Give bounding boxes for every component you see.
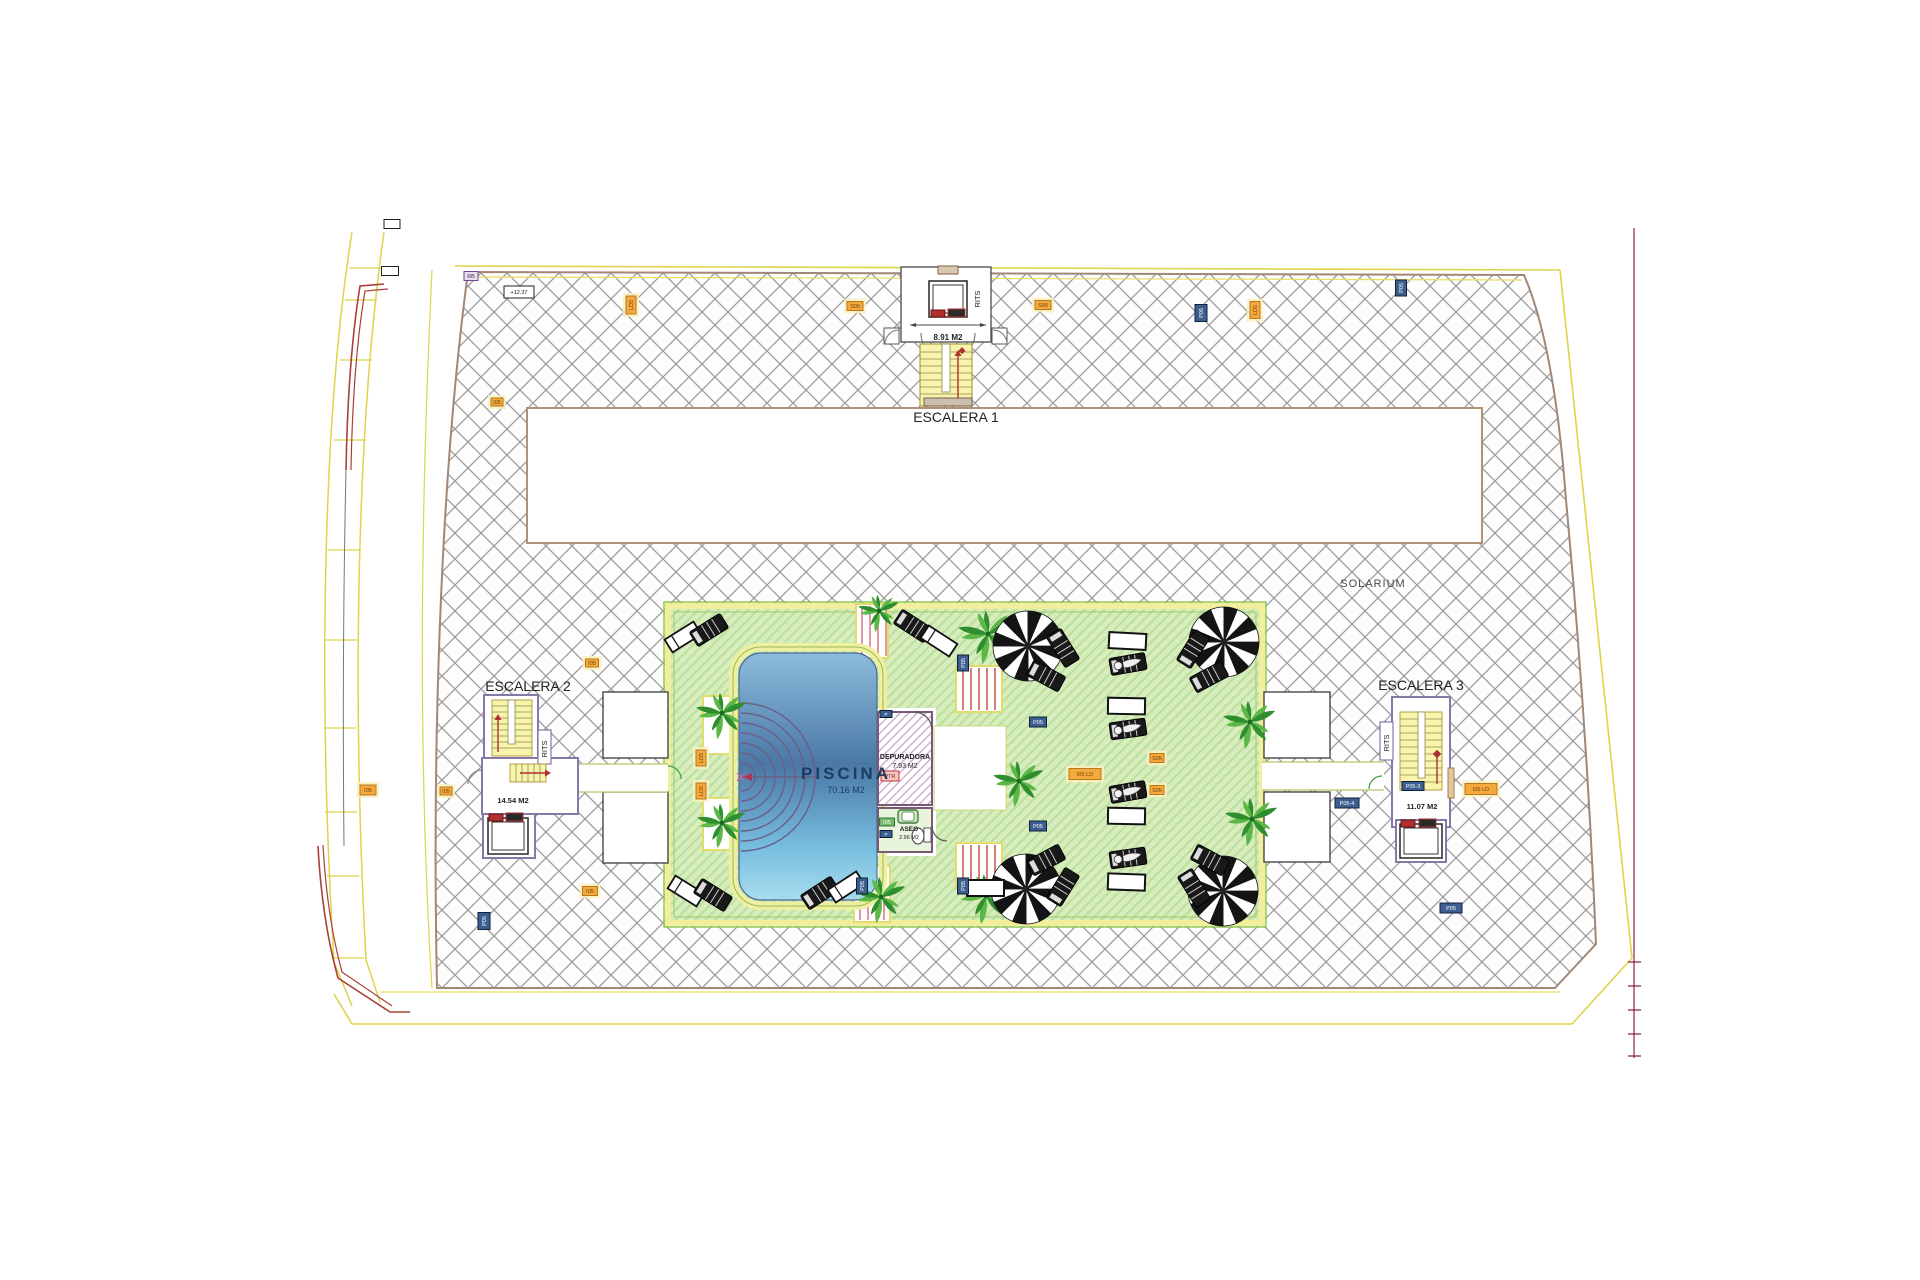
svg-text:P05: P05	[1446, 906, 1456, 912]
svg-text:LD5: LD5	[629, 300, 635, 310]
svg-text:S05: S05	[1152, 756, 1162, 762]
svg-text:+12.37: +12.37	[511, 290, 528, 296]
svg-text:S05: S05	[850, 304, 860, 310]
escalera-3-area: 11.07 M2	[1407, 802, 1438, 811]
svg-text:I05 LD: I05 LD	[1077, 772, 1093, 778]
svg-text:P05: P05	[961, 881, 967, 891]
escalera-2-area: 14.54 M2	[497, 796, 528, 805]
tag-orange-marker: I05 LD	[1462, 781, 1500, 798]
tag-black-marker	[384, 220, 400, 229]
depuradora-label: DEPURADORA	[880, 754, 930, 761]
tag-blue-marker: P05	[958, 655, 969, 671]
svg-text:LD5: LD5	[1253, 305, 1259, 315]
floor-plan-canvas: S05S05LD5I05+12.37RBP05LD5P05I05P05P05I0…	[0, 0, 1920, 1280]
svg-text:I05: I05	[364, 788, 372, 794]
solarium-label: SOLARIUM	[1340, 578, 1405, 590]
svg-text:P05: P05	[482, 916, 488, 926]
tag-blue-marker: P05	[478, 913, 490, 930]
svg-text:P05: P05	[1399, 283, 1405, 293]
svg-text:I05: I05	[442, 789, 450, 795]
svg-text:I05: I05	[493, 400, 501, 406]
tag-green-marker: I05	[880, 818, 895, 826]
svg-text:I05: I05	[883, 820, 891, 826]
svg-text:P05: P05	[1033, 824, 1043, 830]
svg-text:P05: P05	[961, 658, 967, 668]
tag-blue-marker: P05	[1030, 821, 1047, 831]
svg-text:P: P	[884, 712, 887, 717]
tag-black-marker: +12.37	[504, 286, 534, 298]
rits-label-2: RITS	[540, 740, 549, 757]
svg-text:LD5: LD5	[699, 753, 705, 763]
svg-text:P05: P05	[1033, 720, 1043, 726]
rits-label-3: RITS	[1382, 734, 1391, 751]
tag-orange-marker: S05	[844, 299, 866, 314]
tag-blue-marker: P05	[958, 878, 969, 894]
depuradora-area: 7.93 M2	[892, 763, 917, 770]
table-lounger-icon	[1109, 632, 1147, 650]
tag-orange-marker: S05	[1147, 783, 1167, 798]
escalera-2-label: ESCALERA 2	[485, 678, 571, 694]
tag-orange-marker: LD5	[1247, 299, 1263, 322]
tag-purple-marker: RB	[464, 272, 478, 281]
svg-text:P: P	[884, 832, 887, 837]
table-lounger-icon	[1108, 808, 1145, 825]
svg-text:RB: RB	[467, 274, 475, 280]
aseo-label: ASEO	[900, 826, 918, 833]
tag-blue-marker: P05-3	[1402, 782, 1424, 791]
tag-orange-marker: I05	[488, 395, 506, 409]
tag-orange-marker: I05	[357, 782, 379, 798]
tag-orange-marker: S05	[1032, 298, 1054, 313]
tag-blue-marker: P	[880, 831, 892, 838]
tag-blue-marker: P	[880, 711, 892, 718]
tag-orange-marker: I05	[580, 884, 601, 899]
piscina-label: PISCINA	[801, 764, 891, 783]
roof-opening-strip	[527, 408, 1482, 543]
svg-text:S05: S05	[1038, 303, 1048, 309]
tag-blue-marker: P05	[857, 878, 868, 894]
svg-text:P05: P05	[1199, 308, 1205, 318]
svg-text:P05-3: P05-3	[1406, 784, 1421, 790]
tag-orange-marker: LD5	[693, 780, 709, 802]
svg-text:I05 LD: I05 LD	[1473, 787, 1489, 793]
tag-blue-marker: P05	[1030, 717, 1047, 727]
svg-text:P05: P05	[860, 881, 866, 891]
tag-orange-marker: LD5	[693, 747, 709, 769]
tag-orange-marker: I05	[437, 784, 455, 798]
escalera-3-label: ESCALERA 3	[1378, 677, 1464, 693]
svg-text:S05: S05	[1152, 788, 1162, 794]
tag-black-marker	[382, 267, 399, 276]
svg-text:I05: I05	[586, 889, 594, 895]
escalera-1-area: 8.91 M2	[934, 333, 963, 342]
piscina-area: 70.16 M2	[827, 785, 865, 795]
svg-text:P05-4: P05-4	[1340, 801, 1355, 807]
tag-blue-marker: P05	[1195, 305, 1207, 322]
tag-orange-marker: I05 LD	[1066, 766, 1104, 783]
table-lounger-icon	[967, 880, 1004, 896]
rits-label-1: RITS	[973, 290, 982, 307]
floor-plan-drawing: S05S05LD5I05+12.37RBP05LD5P05I05P05P05I0…	[0, 0, 1920, 1280]
tag-blue-marker: P05	[1440, 903, 1462, 913]
svg-text:I05: I05	[588, 661, 596, 667]
aseo-area: 2.96 M2	[899, 835, 919, 841]
left-facade-outline	[318, 232, 432, 1012]
tag-orange-marker: I05	[583, 656, 602, 670]
tag-orange-marker: LD5	[623, 293, 639, 317]
table-lounger-icon	[1108, 873, 1146, 890]
tag-orange-marker: S05	[1147, 751, 1167, 766]
tag-blue-marker: P05-4	[1335, 798, 1359, 808]
table-lounger-icon	[1108, 698, 1145, 715]
tag-blue-marker: P05	[1396, 280, 1407, 296]
svg-text:LD5: LD5	[699, 786, 705, 796]
escalera-1-label: ESCALERA 1	[913, 409, 999, 425]
